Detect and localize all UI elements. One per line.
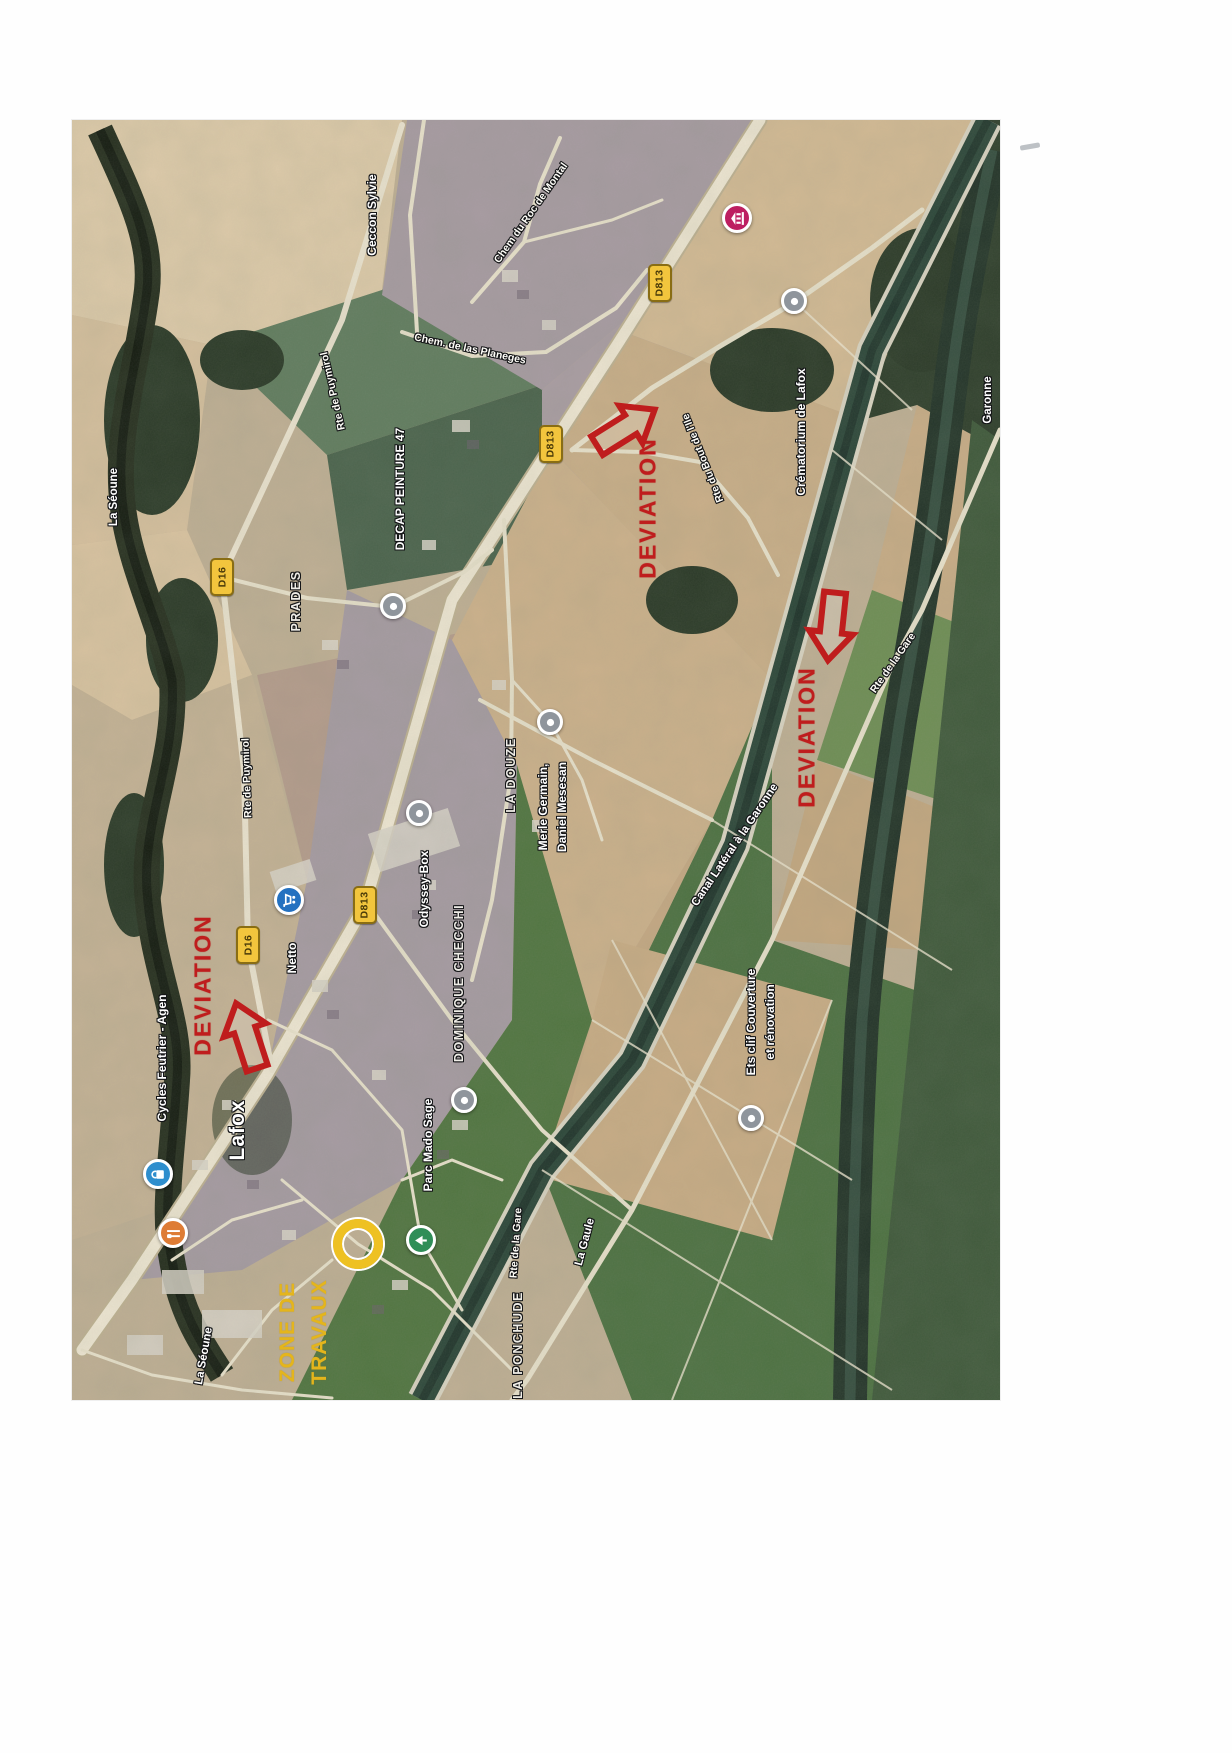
- decap-peinture-poi: [380, 593, 406, 619]
- label-parc-mado-sage: Parc Mado Sage: [421, 1099, 435, 1192]
- odyssey-box-poi: [406, 800, 432, 826]
- label-ets-clif-couverture: Ets clif Couverture: [744, 969, 758, 1076]
- scanned-page: Ceccon SylvieChem du Roc de MontalChem. …: [0, 0, 1232, 1753]
- label-lafox: Lafox: [226, 1099, 250, 1160]
- d813-badge-1: D813: [648, 264, 672, 302]
- label-crematorium-de-lafox: Crématorium de Lafox: [794, 368, 808, 495]
- crematorium-poi: [781, 288, 807, 314]
- label-decap-peinture-47: DECAP PEINTURE 47: [393, 428, 407, 550]
- ets-clif-poi: [738, 1105, 764, 1131]
- label-rte-de-puymirol-nord: Rte de Puymirol: [318, 351, 348, 432]
- dot-icon: [456, 1092, 473, 1109]
- restaurant-poi: [158, 1218, 188, 1248]
- label-la-seoune-nord: La Séoune: [108, 468, 120, 526]
- map-canvas: Ceccon SylvieChem du Roc de MontalChem. …: [72, 120, 1000, 1400]
- label-canal-lateral-a-la-garonne: Canal Latéral à la Garonne: [689, 782, 780, 909]
- d813-badge-3: D813: [353, 886, 377, 924]
- label-chem-du-roc-de-montal: Chem du Roc de Montal: [492, 161, 570, 266]
- label-garonne: Garonne: [982, 376, 994, 423]
- dot-icon: [411, 805, 428, 822]
- cart-icon: [281, 892, 298, 909]
- shop-icon: [150, 1166, 167, 1183]
- d16-badge-1: D16: [210, 558, 234, 596]
- label-la-douze: LA DOUZE: [504, 737, 518, 812]
- label-merle-germain: Merle Germain,: [536, 764, 550, 851]
- label-daniel-mesesan: Daniel Mesesan: [555, 762, 569, 852]
- label-et-renovation: et rénovation: [763, 984, 777, 1059]
- deviation-arrow-center-icon: [544, 353, 700, 507]
- d16-badge-2: D16: [236, 926, 260, 964]
- label-netto: Netto: [285, 943, 299, 974]
- merle-germain-poi: [537, 709, 563, 735]
- restaurant-icon: [165, 1225, 182, 1242]
- parc-mado-sage-poi: [406, 1225, 436, 1255]
- dominique-checchi-poi: [451, 1087, 477, 1113]
- label-ceccon-sylvie: Ceccon Sylvie: [365, 174, 379, 255]
- label-cycles-feutrier-agen: Cycles Feutrier - Agen: [155, 995, 169, 1122]
- label-odyssey-box: Odyssey-Box: [417, 851, 431, 928]
- zone-de-travaux-line1: ZONE DE: [276, 1282, 300, 1382]
- work-zone-ring-icon: [333, 1219, 383, 1269]
- label-rte-de-la-gare-sud: Rte de la Gare: [508, 1207, 525, 1278]
- scan-artifact: [1020, 142, 1041, 150]
- label-la-seoune-sud: La Séoune: [193, 1326, 215, 1385]
- dot-icon: [385, 598, 402, 615]
- label-la-ponchude: LA PONCHUDE: [511, 1291, 525, 1399]
- label-dominique-checchi: DOMINIQUE CHECCHI: [452, 904, 466, 1062]
- museum-icon: [729, 210, 746, 227]
- cycles-feutrier-poi: [143, 1159, 173, 1189]
- tree-icon: [413, 1232, 430, 1249]
- zone-de-travaux-line2: TRAVAUX: [308, 1279, 332, 1384]
- museum-poi: [722, 203, 752, 233]
- deviation-arrow-east-icon: [771, 559, 892, 685]
- map-overlay: Ceccon SylvieChem du Roc de MontalChem. …: [72, 120, 1000, 1400]
- label-prades: PRADES: [289, 570, 303, 631]
- deviation-text-east: DEVIATION: [794, 666, 821, 808]
- label-rte-de-puymirol-sud: Rte de Puymirol: [240, 738, 255, 818]
- dot-icon: [542, 714, 559, 731]
- dot-icon: [786, 293, 803, 310]
- label-la-gaule: La Gaule: [573, 1217, 597, 1267]
- dot-icon: [743, 1110, 760, 1127]
- netto-poi: [274, 885, 304, 915]
- label-chem-de-las-planeges: Chem. de las Planeges: [413, 331, 527, 366]
